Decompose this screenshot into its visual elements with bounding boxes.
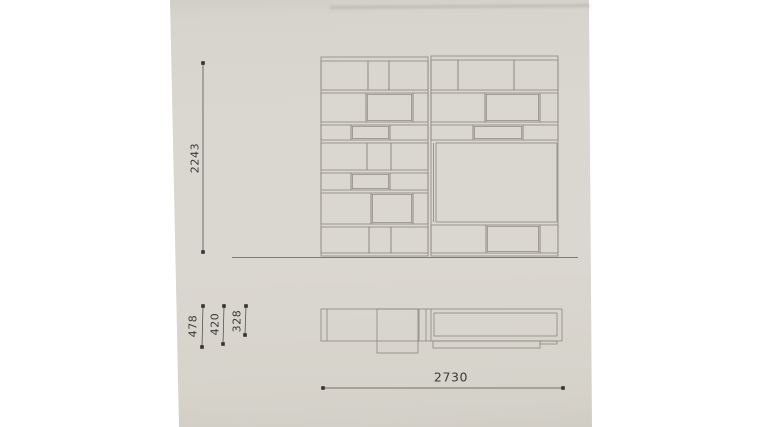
technical-drawing <box>0 0 757 427</box>
dimension-label-depth-420: 420 <box>209 313 222 336</box>
elevation-box-inset <box>352 126 388 138</box>
unit-outline-right-unit <box>431 56 558 256</box>
elevation-cell <box>431 125 473 140</box>
dimension-label-height: 2243 <box>189 143 202 173</box>
elevation-box-inset <box>487 226 538 251</box>
dimension-label-depth-328: 328 <box>231 310 244 333</box>
elevation-cell <box>321 227 369 253</box>
elevation-cell <box>367 143 391 170</box>
dimension-end-dot <box>200 345 204 349</box>
front-elevation-view <box>232 56 578 258</box>
dimension-lines <box>200 61 565 390</box>
elevation-cell <box>473 125 523 140</box>
elevation-cell <box>486 225 540 253</box>
elevation-cell <box>523 125 558 140</box>
elevation-cell <box>391 227 428 253</box>
elevation-cell <box>390 125 428 140</box>
unit-outline-left-unit <box>321 57 428 256</box>
dimension-line-depth_478 <box>202 306 203 347</box>
elevation-cell <box>540 225 558 253</box>
elevation-cell <box>390 173 428 190</box>
dimension-end-dot <box>201 61 205 65</box>
plan-deep-box <box>377 309 418 353</box>
elevation-box-inset <box>352 174 388 188</box>
elevation-box-inset <box>367 94 411 120</box>
dimension-line-depth_420 <box>223 306 224 344</box>
elevation-box-inset <box>486 94 538 120</box>
scanned-catalog-page: 2243 478 420 328 2730 <box>0 0 757 427</box>
elevation-cell <box>431 60 458 90</box>
elevation-cell <box>514 60 558 90</box>
elevation-cell <box>431 93 485 122</box>
elevation-cell <box>431 225 486 253</box>
elevation-cell <box>321 173 351 190</box>
elevation-cell <box>321 143 367 170</box>
elevation-cell <box>351 173 390 190</box>
elevation-cell <box>391 143 428 170</box>
dimension-label-width: 2730 <box>434 370 468 385</box>
elevation-cell <box>321 193 371 224</box>
elevation-cell <box>366 93 413 122</box>
elevation-cell <box>371 193 413 224</box>
elevation-cell <box>436 143 557 222</box>
dimension-end-dot <box>222 304 226 308</box>
elevation-cell <box>389 61 428 90</box>
elevation-cell <box>368 61 389 90</box>
dimension-end-dot <box>321 386 325 390</box>
elevation-cell <box>321 125 351 140</box>
elevation-cell <box>369 227 391 253</box>
plan-right-panel <box>434 313 557 336</box>
plan-bench-step <box>540 341 557 344</box>
elevation-cell <box>485 93 540 122</box>
elevation-cell <box>321 61 368 90</box>
dimension-end-dot <box>201 304 205 308</box>
dimension-end-dot <box>201 250 205 254</box>
elevation-cell <box>540 93 558 122</box>
dimension-line-depth_328 <box>245 306 246 335</box>
dimension-end-dot <box>221 342 225 346</box>
dimension-end-dot <box>243 333 247 337</box>
elevation-box-inset <box>474 126 521 138</box>
plan-bench <box>433 341 540 348</box>
elevation-cell <box>458 60 514 90</box>
elevation-box-inset <box>372 194 411 222</box>
elevation-cell <box>321 93 366 122</box>
dimension-end-dot <box>244 304 248 308</box>
dimension-end-dot <box>561 386 565 390</box>
dimension-label-depth-478: 478 <box>187 315 200 338</box>
elevation-cell <box>351 125 390 140</box>
elevation-cell <box>413 193 428 224</box>
plan-view <box>321 309 562 353</box>
elevation-cell <box>413 93 428 122</box>
